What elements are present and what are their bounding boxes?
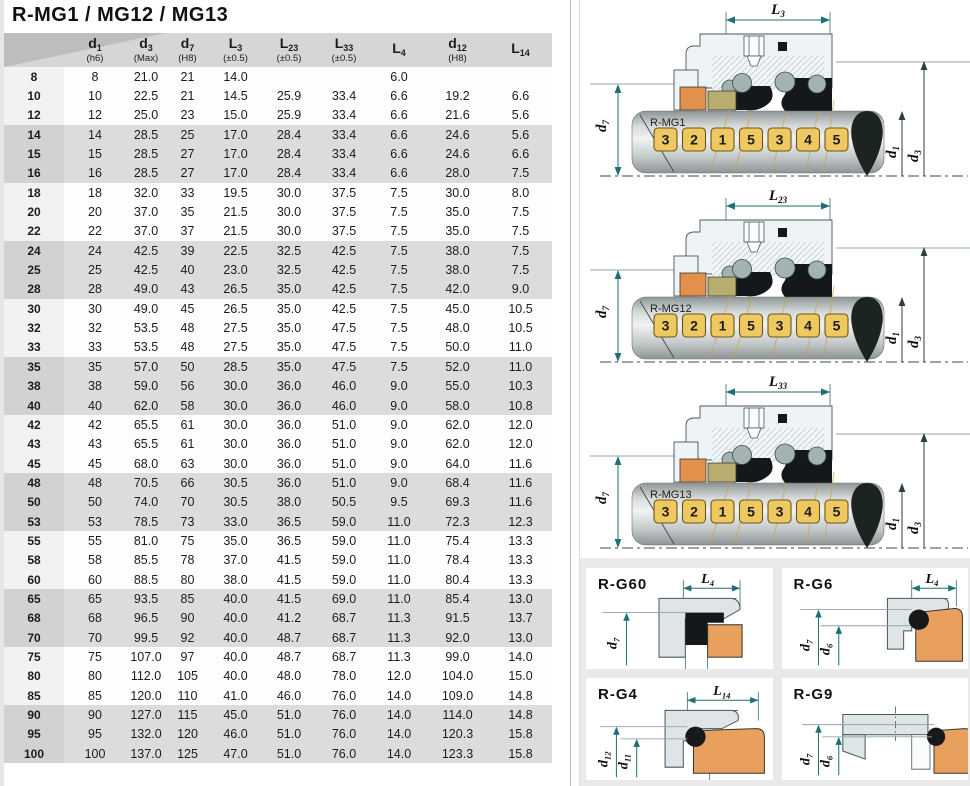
table-cell: 11.0	[489, 360, 552, 374]
table-cell: 18	[64, 186, 126, 200]
table-cell: 30.0	[262, 205, 316, 219]
row-label: 48	[4, 473, 64, 492]
table-cell: 9.0	[372, 437, 426, 451]
table-cell: 48	[166, 340, 209, 354]
spec-table-header: d1(h6)d3(Max)d7(H8)L3(±0.5)L23(±0.5)L33(…	[4, 33, 552, 67]
table-cell: 92	[166, 631, 209, 645]
table-row: 383859.05630.036.046.09.055.010.3	[4, 377, 552, 396]
table-cell: 90	[166, 611, 209, 625]
table-cell: 26.5	[209, 282, 262, 296]
table-cell: 10	[64, 89, 126, 103]
table-cell: 11.6	[489, 495, 552, 509]
table-cell: 38.0	[262, 495, 316, 509]
table-cell: 59.0	[316, 534, 372, 548]
table-cell: 99.5	[126, 631, 166, 645]
panel-r-g9: R-G9 d7	[782, 678, 969, 779]
table-cell: 21.5	[209, 224, 262, 238]
d1-dimension: d1	[884, 483, 905, 548]
table-cell: 10.8	[489, 399, 552, 413]
table-cell: 47.0	[209, 747, 262, 761]
table-row: 484870.56630.536.051.09.068.411.6	[4, 473, 552, 492]
table-row: 7575107.09740.048.768.711.399.014.0	[4, 647, 552, 666]
row-label: 58	[4, 551, 64, 570]
table-cell: 11.0	[372, 573, 426, 587]
row-label: 10	[4, 86, 64, 105]
table-cell: 38.0	[209, 573, 262, 587]
table-row: 434365.56130.036.051.09.062.012.0	[4, 435, 552, 454]
table-cell: 93.5	[126, 592, 166, 606]
shaft: R-MG1 3215345	[632, 100, 884, 176]
table-cell: 51.0	[262, 708, 316, 722]
table-row: 101022.52114.525.933.46.619.26.6	[4, 86, 552, 105]
table-cell: 43	[166, 282, 209, 296]
table-cell: 78.4	[426, 553, 489, 567]
table-row: 9595132.012046.051.076.014.0120.315.8	[4, 725, 552, 744]
table-cell: 15.0	[209, 108, 262, 122]
table-cell: 7.5	[372, 321, 426, 335]
table-cell: 23	[166, 108, 209, 122]
table-cell: 30.0	[209, 457, 262, 471]
row-label: 38	[4, 377, 64, 396]
table-row: 707099.59240.048.768.711.392.013.0	[4, 628, 552, 647]
badge-number: 5	[833, 318, 841, 334]
panel-r-g60: R-G60 L4	[586, 568, 773, 669]
table-cell: 7.5	[372, 263, 426, 277]
d1-dimension: d1	[884, 111, 905, 176]
table-cell: 33	[166, 186, 209, 200]
table-cell: 6.6	[372, 147, 426, 161]
table-cell: 9.0	[372, 418, 426, 432]
table-cell: 132.0	[126, 727, 166, 741]
table-cell: 7.5	[372, 224, 426, 238]
seal-model-label: R-MG12	[650, 303, 692, 315]
d3-dimension: d3	[906, 433, 927, 548]
table-cell: 11.0	[372, 553, 426, 567]
page-title: R-MG1 / MG12 / MG13	[12, 4, 228, 27]
table-cell: 33	[64, 340, 126, 354]
set-screw	[744, 36, 764, 56]
length-dim-label: L33	[768, 374, 788, 391]
table-cell: 26.5	[209, 302, 262, 316]
table-cell: 45	[166, 302, 209, 316]
table-cell: 39	[166, 244, 209, 258]
badge-number: 5	[833, 504, 841, 520]
table-cell: 13.3	[489, 573, 552, 587]
table-cell: 33.0	[209, 515, 262, 529]
table-cell: 25.0	[126, 108, 166, 122]
table-cell: 25.9	[262, 108, 316, 122]
table-cell: 12.3	[489, 515, 552, 529]
table-cell: 35	[64, 360, 126, 374]
table-cell: 42	[64, 418, 126, 432]
spring-coil	[733, 74, 752, 93]
table-cell: 68.7	[316, 611, 372, 625]
table-cell: 9.0	[372, 379, 426, 393]
table-cell: 28.4	[262, 128, 316, 142]
seal-model-label: R-MG13	[650, 489, 692, 501]
table-cell: 96.5	[126, 611, 166, 625]
table-cell: 42.5	[316, 263, 372, 277]
table-cell: 33.4	[316, 89, 372, 103]
table-cell: 70	[166, 495, 209, 509]
table-cell: 45.0	[209, 708, 262, 722]
o-ring	[685, 727, 705, 747]
table-cell: 35.0	[262, 340, 316, 354]
table-cell: 90	[64, 708, 126, 722]
table-row: 141428.52517.028.433.46.624.65.6	[4, 125, 552, 144]
d1-label: d1	[884, 518, 901, 530]
table-cell: 69.3	[426, 495, 489, 509]
badge-number: 1	[719, 318, 727, 334]
table-cell: 7.5	[489, 244, 552, 258]
table-cell: 36.0	[262, 379, 316, 393]
d7-label: d7	[594, 120, 611, 133]
table-row: 353557.05028.535.047.57.552.011.0	[4, 357, 552, 376]
table-cell: 38	[64, 379, 126, 393]
table-cell: 51.0	[316, 457, 372, 471]
table-cell: 28.0	[426, 166, 489, 180]
table-cell: 76.0	[316, 727, 372, 741]
svg-text:d11: d11	[616, 754, 633, 769]
table-cell: 62.0	[426, 437, 489, 451]
table-row: 151528.52717.028.433.46.624.66.6	[4, 144, 552, 163]
badge-number: 2	[690, 318, 698, 334]
table-cell: 35.0	[262, 282, 316, 296]
spring-coil	[733, 260, 752, 279]
table-cell: 32.0	[126, 186, 166, 200]
table-cell: 23.0	[209, 263, 262, 277]
table-cell: 27.5	[209, 321, 262, 335]
table-cell: 24	[64, 244, 126, 258]
table-row: 8821.02114.06.0	[4, 67, 552, 86]
sleeve-step	[911, 735, 929, 769]
row-label: 25	[4, 260, 64, 279]
row-label: 15	[4, 144, 64, 163]
table-cell: 85	[166, 592, 209, 606]
table-row: 242442.53922.532.542.57.538.07.5	[4, 241, 552, 260]
table-cell: 30.0	[426, 186, 489, 200]
table-cell: 8	[64, 70, 126, 84]
table-row: 505074.07030.538.050.59.569.311.6	[4, 493, 552, 512]
table-cell: 28.5	[126, 128, 166, 142]
row-label: 53	[4, 512, 64, 531]
table-cell: 37.5	[316, 186, 372, 200]
table-cell: 80	[166, 573, 209, 587]
spring-coil	[808, 261, 826, 279]
table-cell: 37.5	[316, 205, 372, 219]
table-cell: 28.5	[209, 360, 262, 374]
table-cell: 37	[166, 224, 209, 238]
table-cell: 37.0	[126, 224, 166, 238]
table-cell: 6.6	[372, 128, 426, 142]
table-cell: 52.0	[426, 360, 489, 374]
table-cell: 42.5	[126, 244, 166, 258]
table-cell: 11.3	[372, 631, 426, 645]
table-cell: 65.5	[126, 437, 166, 451]
table-cell: 88.5	[126, 573, 166, 587]
column-header: d12(H8)	[426, 36, 489, 64]
svg-text:d6: d6	[817, 755, 834, 767]
table-cell: 62.0	[126, 399, 166, 413]
table-cell: 10.3	[489, 379, 552, 393]
table-cell: 24.6	[426, 147, 489, 161]
length-dim-label: L3	[770, 2, 785, 19]
spec-table-body: 8821.02114.06.0101022.52114.525.933.46.6…	[4, 67, 552, 763]
d7-dimension: d7	[594, 456, 621, 548]
svg-text:d7: d7	[604, 637, 621, 649]
component-number-badges: 3215345	[654, 500, 848, 523]
table-cell: 22.5	[126, 89, 166, 103]
table-cell: 6.6	[372, 108, 426, 122]
table-cell: 65.5	[126, 418, 166, 432]
d3-label: d3	[906, 150, 923, 163]
table-cell: 70.5	[126, 476, 166, 490]
table-cell: 51.0	[262, 747, 316, 761]
badge-number: 3	[776, 132, 784, 148]
table-cell: 60	[64, 573, 126, 587]
table-cell: 30.0	[262, 186, 316, 200]
table-cell: 50.5	[316, 495, 372, 509]
table-cell: 30.0	[209, 437, 262, 451]
component-number-badges: 3215345	[654, 314, 848, 337]
table-cell: 74.0	[126, 495, 166, 509]
table-cell: 11.6	[489, 476, 552, 490]
table-cell: 22	[64, 224, 126, 238]
badge-number: 1	[719, 132, 727, 148]
table-cell: 46.0	[316, 399, 372, 413]
table-cell: 78.5	[126, 515, 166, 529]
length-dim-label: L23	[768, 188, 788, 205]
table-cell: 30.0	[209, 379, 262, 393]
table-cell: 14.0	[372, 689, 426, 703]
table-cell: 35.0	[209, 534, 262, 548]
table-cell: 32	[64, 321, 126, 335]
table-cell: 45.0	[426, 302, 489, 316]
table-cell: 48.0	[262, 669, 316, 683]
table-cell: 43	[64, 437, 126, 451]
table-cell: 99.0	[426, 650, 489, 664]
row-label: 50	[4, 493, 64, 512]
table-cell: 35	[166, 205, 209, 219]
svg-text:d7: d7	[797, 639, 814, 651]
badge-number: 4	[804, 318, 812, 334]
table-cell: 14.0	[209, 70, 262, 84]
table-cell: 21	[166, 89, 209, 103]
table-cell: 68.4	[426, 476, 489, 490]
table-cell: 48.7	[262, 631, 316, 645]
table-cell: 51.0	[316, 476, 372, 490]
table-cell: 58	[64, 553, 126, 567]
table-cell: 10.5	[489, 302, 552, 316]
badge-number: 3	[776, 318, 784, 334]
table-cell: 68.7	[316, 631, 372, 645]
table-cell: 91.5	[426, 611, 489, 625]
table-cell: 85	[64, 689, 126, 703]
table-cell: 59.0	[316, 573, 372, 587]
set-screw	[744, 222, 764, 242]
seal-diagram-r-mg1: L3 R-MG1 321534	[580, 0, 970, 186]
table-cell: 80.4	[426, 573, 489, 587]
table-cell: 14.0	[489, 650, 552, 664]
table-cell: 30	[64, 302, 126, 316]
table-cell: 57.0	[126, 360, 166, 374]
table-cell: 73	[166, 515, 209, 529]
table-cell: 59.0	[316, 553, 372, 567]
d3-label: d3	[906, 522, 923, 535]
detail-panel-grid: R-G60 L4	[580, 558, 970, 786]
table-cell: 28.5	[126, 166, 166, 180]
table-cell: 41.2	[262, 611, 316, 625]
table-row: 535378.57333.036.559.011.072.312.3	[4, 512, 552, 531]
table-cell: 32.5	[262, 263, 316, 277]
table-cell: 12.0	[372, 669, 426, 683]
row-label: 70	[4, 628, 64, 647]
row-label: 35	[4, 357, 64, 376]
table-cell: 137.0	[126, 747, 166, 761]
badge-number: 5	[747, 504, 755, 520]
d7-label: d7	[594, 306, 611, 319]
table-cell: 62.0	[426, 418, 489, 432]
d3-dimension: d3	[906, 247, 927, 362]
table-cell: 56	[166, 379, 209, 393]
table-cell: 30.0	[209, 399, 262, 413]
table-cell: 47.5	[316, 321, 372, 335]
table-cell: 13.3	[489, 534, 552, 548]
table-cell: 127.0	[126, 708, 166, 722]
table-row: 555581.07535.036.559.011.075.413.3	[4, 531, 552, 550]
row-label: 16	[4, 164, 64, 183]
badge-number: 2	[690, 504, 698, 520]
seal-face-orange	[680, 459, 706, 482]
table-cell: 14.5	[209, 89, 262, 103]
table-cell: 42.5	[316, 244, 372, 258]
row-label: 42	[4, 415, 64, 434]
table-cell: 40.0	[209, 650, 262, 664]
table-row: 585885.57837.041.559.011.078.413.3	[4, 551, 552, 570]
table-cell: 40	[166, 263, 209, 277]
d1-label: d1	[884, 332, 901, 344]
dimension-table: d1(h6)d3(Max)d7(H8)L3(±0.5)L23(±0.5)L33(…	[4, 33, 552, 763]
row-label: 100	[4, 744, 64, 763]
table-cell: 15.8	[489, 727, 552, 741]
svg-text:L14: L14	[712, 684, 731, 701]
table-cell: 36.0	[262, 476, 316, 490]
table-cell: 68.0	[126, 457, 166, 471]
seal-face-orange	[680, 273, 706, 296]
table-row: 656593.58540.041.569.011.085.413.0	[4, 589, 552, 608]
table-cell: 48	[166, 321, 209, 335]
table-cell: 41.5	[262, 573, 316, 587]
table-row: 424265.56130.036.051.09.062.012.0	[4, 415, 552, 434]
seal-model-label: R-MG1	[650, 117, 685, 129]
column-header: d7(H8)	[166, 36, 209, 64]
row-label: 65	[4, 589, 64, 608]
d3-label: d3	[906, 336, 923, 349]
table-cell: 8.0	[489, 186, 552, 200]
table-cell: 45	[64, 457, 126, 471]
table-cell: 47.5	[316, 360, 372, 374]
table-cell: 58.0	[426, 399, 489, 413]
table-cell: 76.0	[316, 708, 372, 722]
table-cell: 95	[64, 727, 126, 741]
table-cell: 49.0	[126, 302, 166, 316]
table-cell: 40.0	[209, 669, 262, 683]
table-cell: 7.5	[372, 244, 426, 258]
table-cell: 40	[64, 399, 126, 413]
table-cell: 21.0	[126, 70, 166, 84]
table-cell: 36.0	[262, 418, 316, 432]
table-cell: 16	[64, 166, 126, 180]
badge-number: 5	[833, 132, 841, 148]
table-cell: 24.6	[426, 128, 489, 142]
table-cell: 21.5	[209, 205, 262, 219]
table-row: 100100137.012547.051.076.014.0123.315.8	[4, 744, 552, 763]
table-cell: 36.5	[262, 534, 316, 548]
table-row: 121225.02315.025.933.46.621.65.6	[4, 106, 552, 125]
table-cell: 14.0	[372, 747, 426, 761]
table-cell: 68	[64, 611, 126, 625]
svg-text:L4: L4	[924, 571, 939, 588]
table-cell: 41.0	[209, 689, 262, 703]
table-cell: 35.0	[426, 205, 489, 219]
seal-face-orange	[680, 87, 706, 110]
shaft: R-MG12 3215345	[632, 286, 884, 362]
row-label: 18	[4, 183, 64, 202]
component-number-badges: 3215345	[654, 128, 848, 151]
table-cell: 125	[166, 747, 209, 761]
table-cell: 6.6	[372, 89, 426, 103]
table-cell: 11.3	[372, 611, 426, 625]
table-cell: 11.0	[489, 340, 552, 354]
o-ring	[908, 610, 928, 630]
table-cell: 53.5	[126, 340, 166, 354]
table-row: 222237.03721.530.037.57.535.07.5	[4, 222, 552, 241]
table-cell: 58	[166, 399, 209, 413]
row-label: 90	[4, 705, 64, 724]
seal-diagram-r-mg13: L33 R-MG13 3215	[580, 372, 970, 558]
diagram-stack: L3 R-MG1 321534	[580, 0, 970, 558]
drive-pin	[778, 228, 787, 237]
table-cell: 17.0	[209, 147, 262, 161]
table-cell: 13.7	[489, 611, 552, 625]
table-cell: 37.0	[126, 205, 166, 219]
table-cell: 5.6	[489, 128, 552, 142]
table-cell: 36.0	[262, 399, 316, 413]
datasheet-page: R-MG1 / MG12 / MG13 d1(h6)d3(Max)d7(H8)L…	[0, 0, 970, 786]
vertical-divider	[570, 0, 580, 786]
table-cell: 19.2	[426, 89, 489, 103]
panel-r-g6: R-G6 L4 d7	[782, 568, 969, 669]
d1-dimension: d1	[884, 297, 905, 362]
table-cell: 11.0	[372, 592, 426, 606]
column-header: d1(h6)	[64, 36, 126, 64]
table-cell: 115	[166, 708, 209, 722]
table-cell: 30.0	[262, 224, 316, 238]
badge-number: 1	[719, 504, 727, 520]
table-cell: 63	[166, 457, 209, 471]
table-cell: 61	[166, 418, 209, 432]
svg-text:d7: d7	[797, 753, 814, 765]
table-cell: 28	[64, 282, 126, 296]
table-cell: 30.5	[209, 495, 262, 509]
table-cell: 41.5	[262, 553, 316, 567]
table-cell: 27	[166, 147, 209, 161]
table-cell: 35.0	[262, 302, 316, 316]
table-cell: 33.4	[316, 128, 372, 142]
table-cell: 14	[64, 128, 126, 142]
table-row: 404062.05830.036.046.09.058.010.8	[4, 396, 552, 415]
table-cell: 105	[166, 669, 209, 683]
